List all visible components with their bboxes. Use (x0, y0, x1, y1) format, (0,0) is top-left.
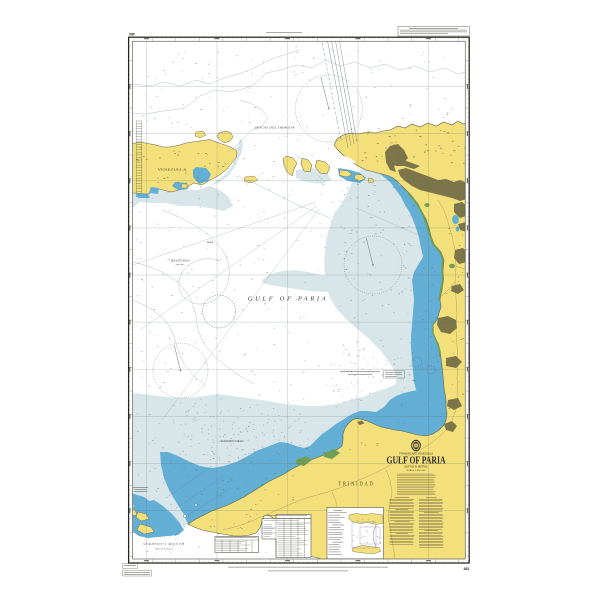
svg-text:GULF OF PARIA: GULF OF PARIA (248, 296, 329, 303)
svg-text:483: 483 (129, 32, 135, 36)
svg-text:Guiria: Guiria (207, 241, 214, 244)
svg-text:VENEZUELA: VENEZUELA (158, 168, 188, 172)
svg-text:(Boca de la Sierpe): (Boca de la Sierpe) (156, 548, 173, 551)
svg-text:SERPENT'S MOUTH: SERPENT'S MOUTH (143, 542, 184, 546)
svg-text:TRINIDAD: TRINIDAD (339, 481, 375, 488)
svg-text:(see note): (see note) (176, 263, 185, 266)
svg-text:483: 483 (464, 567, 470, 571)
svg-text:DEPTHS IN METRES: DEPTHS IN METRES (405, 465, 428, 468)
svg-text:SEA LOTS ANCH: SEA LOTS ANCH (171, 260, 190, 263)
svg-text:SCALE 1:150 000: SCALE 1:150 000 (407, 469, 427, 472)
svg-text:SOLDADO FIELD: SOLDADO FIELD (221, 440, 244, 443)
svg-text:BOCAS DEL DRAGON: BOCAS DEL DRAGON (255, 127, 295, 130)
